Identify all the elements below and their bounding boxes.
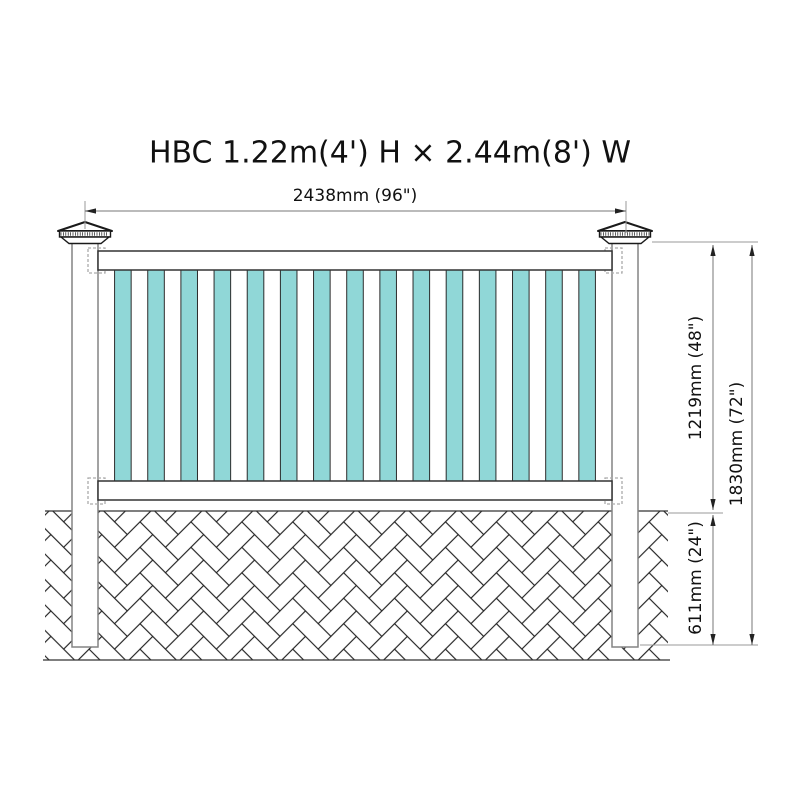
buried-depth-dimension-label: 611mm (24") xyxy=(686,521,706,635)
fence-post xyxy=(612,243,638,647)
panel-height-dimension-label: 1219mm (48") xyxy=(686,316,706,441)
picket xyxy=(214,270,231,481)
picket xyxy=(247,270,264,481)
top-rail xyxy=(98,251,612,270)
picket xyxy=(413,270,430,481)
picket xyxy=(446,270,463,481)
post-caps xyxy=(58,222,652,244)
picket xyxy=(148,270,165,481)
picket xyxy=(181,270,198,481)
picket xyxy=(513,270,530,481)
diagram-title: HBC 1.22m(4') H × 2.44m(8') W xyxy=(149,136,631,171)
picket xyxy=(380,270,397,481)
picket xyxy=(479,270,496,481)
fence-dimension-diagram: HBC 1.22m(4') H × 2.44m(8') W 2438mm (96… xyxy=(0,0,800,800)
ground xyxy=(43,511,670,660)
picket xyxy=(546,270,563,481)
picket xyxy=(115,270,132,481)
pickets xyxy=(115,270,596,481)
picket xyxy=(347,270,364,481)
bottom-rail xyxy=(98,481,612,500)
overall-height-dimension-label: 1830mm (72") xyxy=(727,382,747,507)
post-cap xyxy=(598,222,652,231)
fence-drawing xyxy=(0,0,800,800)
picket xyxy=(314,270,331,481)
picket xyxy=(280,270,297,481)
fence-post xyxy=(72,243,98,647)
width-dimension-label: 2438mm (96") xyxy=(293,186,418,206)
picket xyxy=(579,270,596,481)
